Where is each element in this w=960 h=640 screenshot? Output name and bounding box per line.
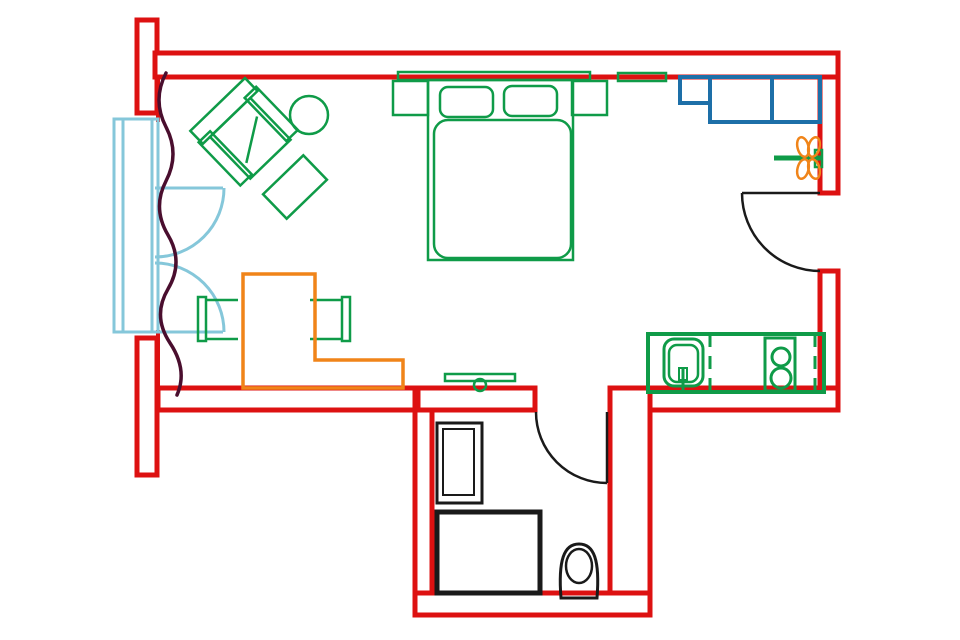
ottoman-top <box>263 155 327 218</box>
ottoman <box>263 155 327 218</box>
toilet-seat <box>566 549 592 583</box>
nightstand-right <box>572 81 607 115</box>
kitchen-counter <box>648 334 824 392</box>
washing-machine-inner <box>443 429 474 495</box>
entry-door-swing <box>742 193 820 271</box>
stove-burner <box>772 348 790 366</box>
curtain-group <box>159 73 181 395</box>
desk-group <box>243 274 403 388</box>
chair-back <box>198 297 206 341</box>
stove-burner <box>771 368 791 388</box>
pillow-right <box>504 86 557 116</box>
curtain-wave <box>159 73 181 395</box>
bathroom-door-swing <box>536 412 607 483</box>
floor-plan-canvas <box>0 0 960 640</box>
armchair <box>189 77 299 187</box>
armchair-backrest <box>190 78 257 144</box>
green-furniture <box>189 72 822 391</box>
cabinet-main <box>710 77 820 122</box>
wall-pillar-left-lower <box>137 338 157 475</box>
desk <box>243 274 403 388</box>
wall-bathroom-left <box>415 388 432 615</box>
side-table <box>290 96 328 134</box>
chair-back <box>342 297 350 341</box>
wall-right-upper <box>820 77 838 193</box>
wall-bottom-main <box>158 388 418 410</box>
duvet <box>434 120 571 258</box>
wall-bathroom-right <box>610 388 650 593</box>
bed-frame <box>428 80 573 260</box>
pillow-left <box>440 87 493 117</box>
floor-plan-svg <box>0 0 960 640</box>
shower <box>437 512 540 593</box>
nightstand-left <box>393 81 428 115</box>
cabinet-group <box>680 77 820 122</box>
french-door-swing-top <box>155 188 224 257</box>
wall-bathroom-bottom <box>415 593 650 615</box>
wall-top <box>155 53 838 77</box>
kitchen <box>648 334 824 394</box>
cabinet-small-section <box>680 77 710 103</box>
